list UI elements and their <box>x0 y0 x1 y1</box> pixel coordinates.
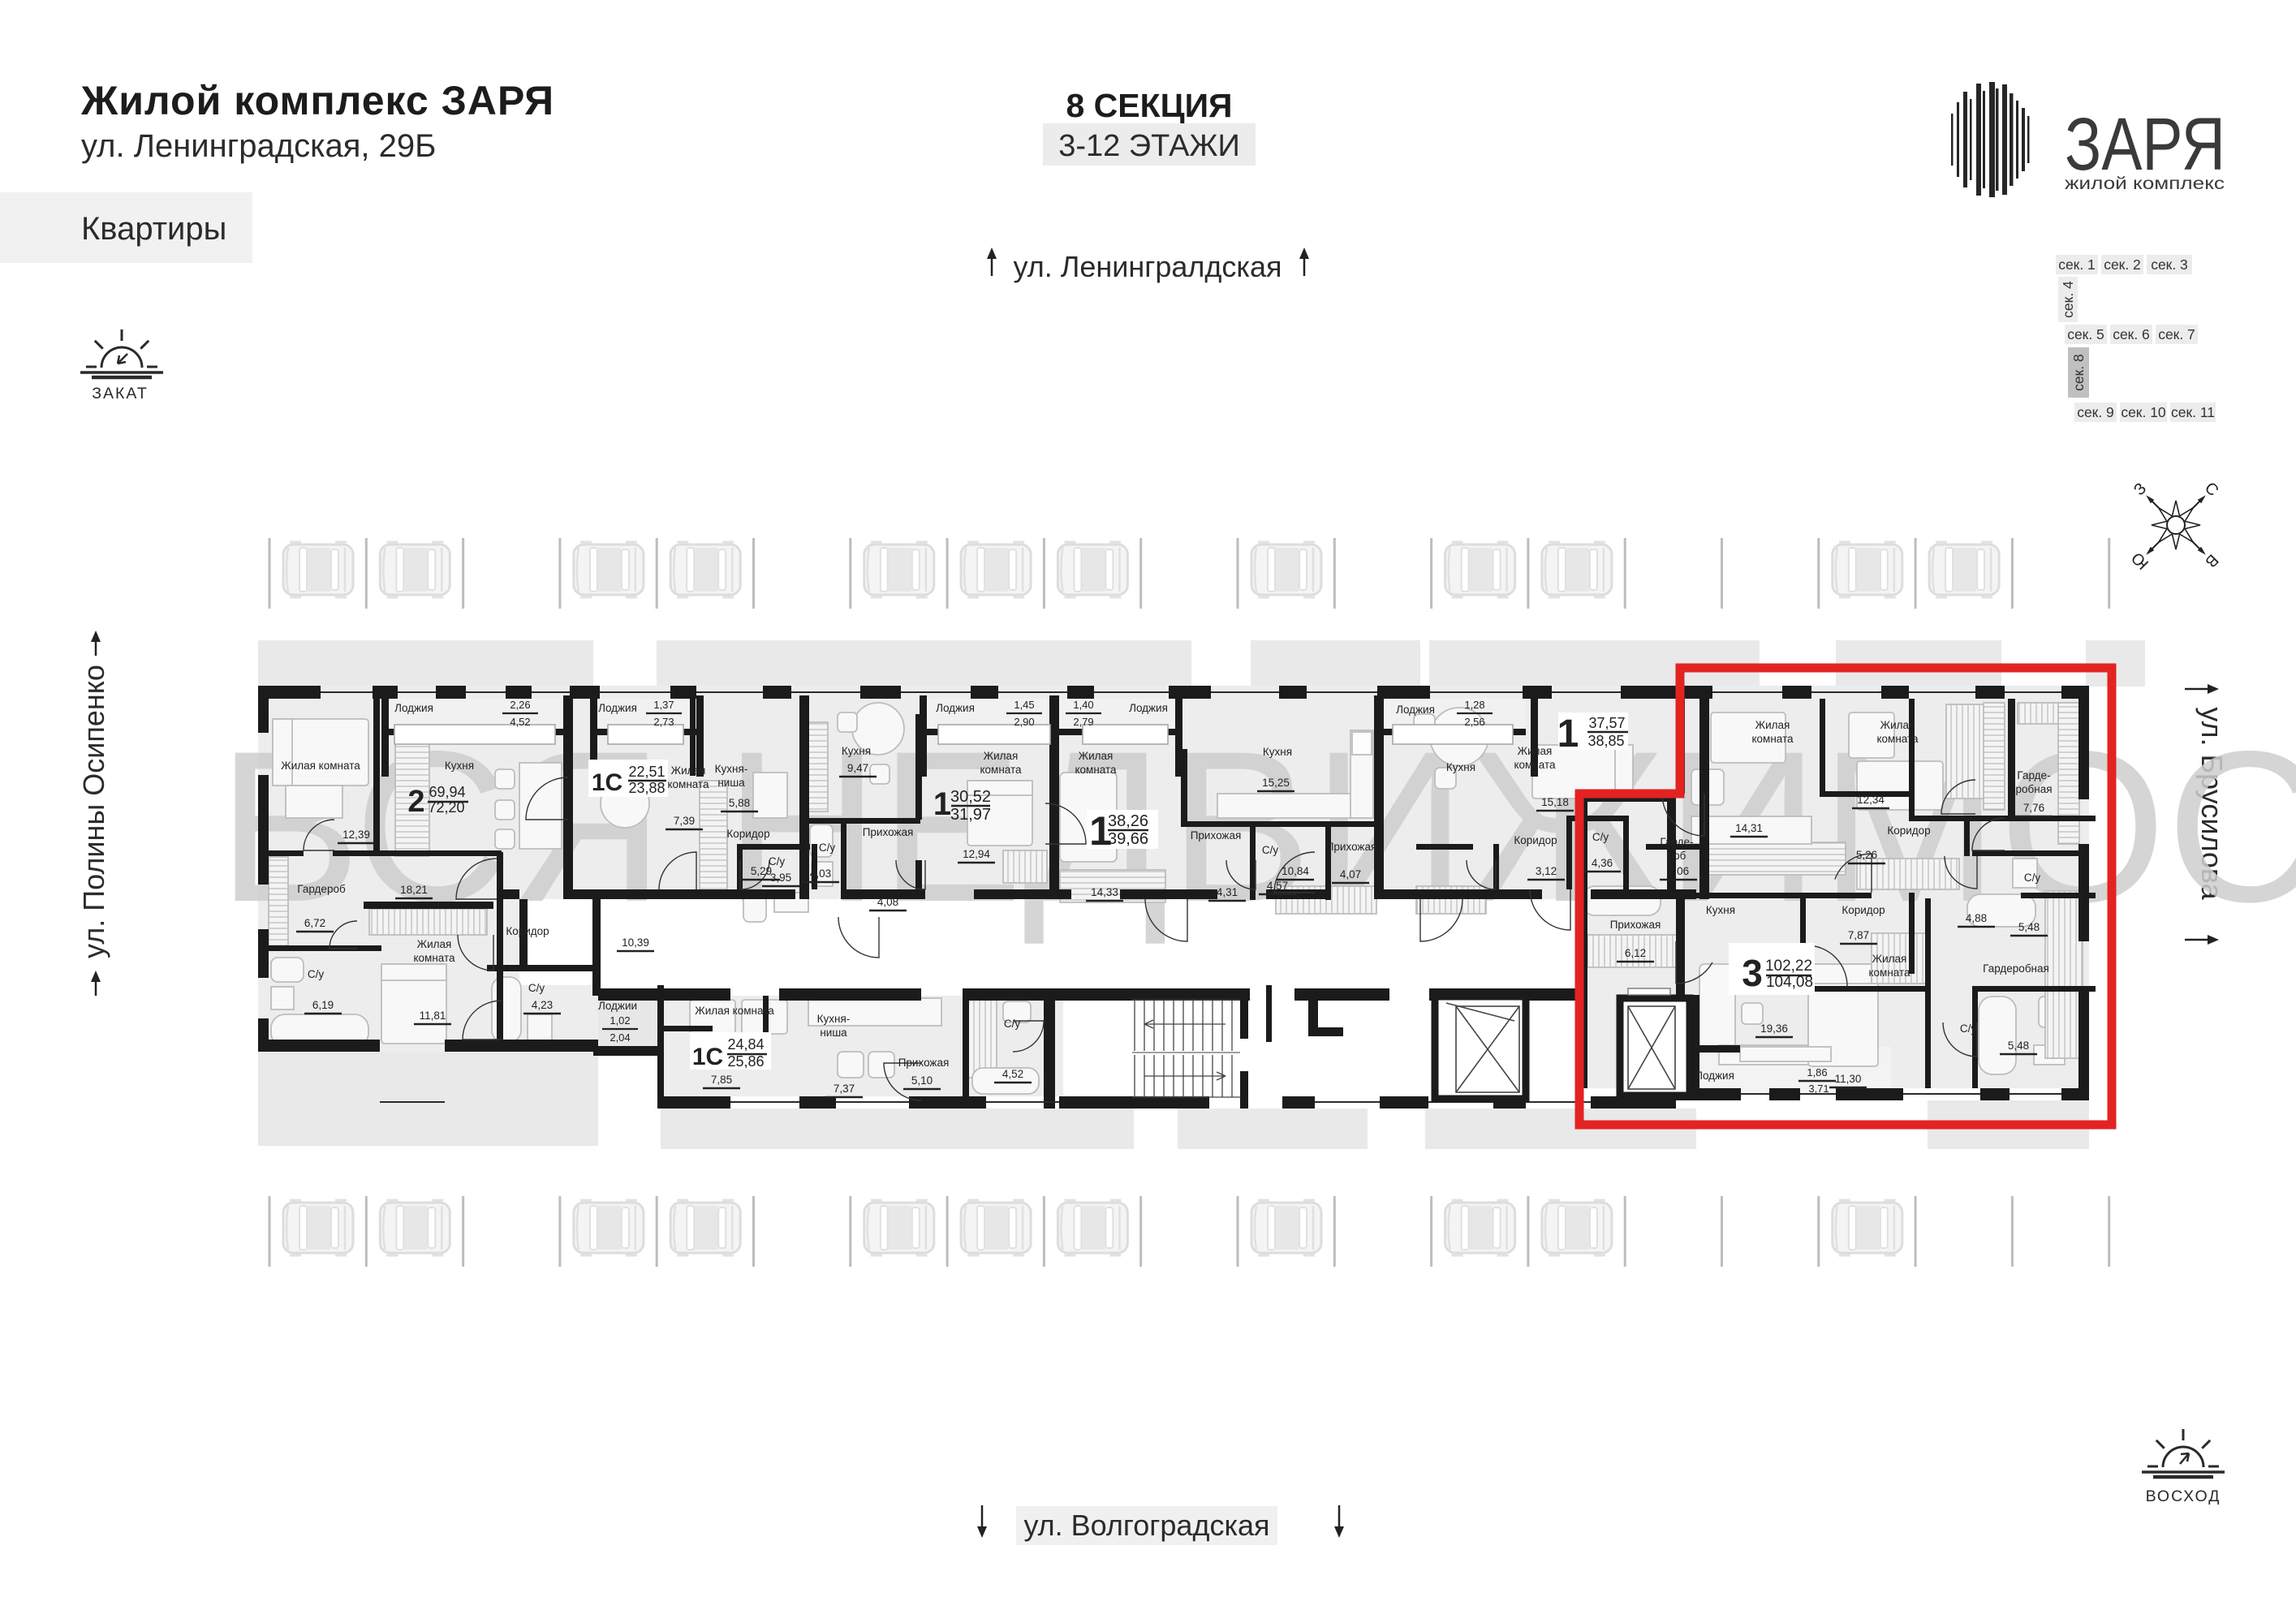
svg-text:Жилая комната: Жилая комната <box>695 1005 774 1017</box>
svg-text:1С: 1С <box>592 769 622 796</box>
svg-text:3: 3 <box>1742 952 1763 994</box>
svg-text:1,28: 1,28 <box>1464 699 1484 711</box>
svg-text:1: 1 <box>933 786 951 822</box>
svg-text:6,12: 6,12 <box>1625 947 1646 959</box>
svg-text:Гарде-: Гарде- <box>1660 836 1693 848</box>
svg-text:2: 2 <box>407 785 424 819</box>
svg-text:2,04: 2,04 <box>610 1031 630 1044</box>
svg-text:5,29: 5,29 <box>751 865 772 877</box>
svg-text:сек. 8: сек. 8 <box>2070 354 2087 391</box>
svg-text:9,47: 9,47 <box>847 762 868 774</box>
svg-text:1: 1 <box>1557 712 1579 756</box>
svg-text:Жилая: Жилая <box>1880 719 1915 731</box>
svg-text:Жилая: Жилая <box>984 750 1019 762</box>
svg-text:С/у: С/у <box>1592 831 1609 843</box>
svg-text:сек. 3: сек. 3 <box>2151 256 2188 273</box>
svg-text:11,81: 11,81 <box>420 1010 446 1022</box>
svg-text:Кухня: Кухня <box>1446 761 1475 773</box>
svg-text:Жилая: Жилая <box>1872 953 1907 965</box>
svg-text:Жилая: Жилая <box>1518 745 1553 757</box>
svg-text:жилой комплекс: жилой комплекс <box>2065 174 2225 193</box>
svg-text:1,02: 1,02 <box>610 1014 630 1027</box>
svg-text:7,85: 7,85 <box>711 1074 732 1086</box>
svg-text:72,20: 72,20 <box>428 799 464 816</box>
svg-text:ул. Ленингралдская: ул. Ленингралдская <box>1014 250 1282 283</box>
svg-text:сек. 2: сек. 2 <box>2104 256 2141 273</box>
svg-text:Квартиры: Квартиры <box>81 211 226 247</box>
svg-text:комната: комната <box>980 764 1022 776</box>
svg-text:2,56: 2,56 <box>1464 716 1484 728</box>
svg-text:Жилая: Жилая <box>1755 719 1790 731</box>
svg-text:37,57: 37,57 <box>1588 715 1625 731</box>
svg-text:сек. 6: сек. 6 <box>2113 326 2150 342</box>
svg-text:сек. 7: сек. 7 <box>2158 326 2195 342</box>
svg-text:С/у: С/у <box>819 842 836 854</box>
svg-text:Жилая: Жилая <box>1079 750 1114 762</box>
svg-text:сек. 10: сек. 10 <box>2121 404 2166 420</box>
svg-text:4,03: 4,03 <box>810 867 831 880</box>
svg-text:2,90: 2,90 <box>1014 716 1034 728</box>
svg-text:комната: комната <box>1876 733 1919 745</box>
svg-text:7,76: 7,76 <box>2023 802 2044 814</box>
svg-text:Кухня: Кухня <box>445 760 474 772</box>
svg-text:комната: комната <box>1075 764 1117 776</box>
svg-text:С/у: С/у <box>1960 1022 1977 1035</box>
svg-text:2,06: 2,06 <box>1668 865 1689 877</box>
svg-text:1,37: 1,37 <box>653 699 674 711</box>
svg-text:Коридор: Коридор <box>1842 904 1885 916</box>
svg-text:7,39: 7,39 <box>674 815 695 827</box>
svg-text:31,97: 31,97 <box>950 806 991 824</box>
svg-text:Жилая комната: Жилая комната <box>281 760 360 772</box>
svg-text:6,19: 6,19 <box>312 999 334 1011</box>
svg-text:3-12 ЭТАЖИ: 3-12 ЭТАЖИ <box>1058 129 1240 163</box>
svg-text:Прихожая: Прихожая <box>898 1057 950 1069</box>
svg-text:104,08: 104,08 <box>1766 974 1813 991</box>
svg-text:4,88: 4,88 <box>1966 912 1987 924</box>
svg-text:Кухня-: Кухня- <box>715 763 748 775</box>
svg-text:1,86: 1,86 <box>1807 1066 1827 1078</box>
svg-text:Коридор: Коридор <box>1514 834 1557 846</box>
svg-text:12,94: 12,94 <box>963 848 990 860</box>
svg-text:5,10: 5,10 <box>911 1074 933 1087</box>
svg-text:22,51: 22,51 <box>628 764 665 780</box>
svg-text:Коридор: Коридор <box>726 828 769 840</box>
svg-text:15,18: 15,18 <box>1541 796 1569 808</box>
svg-text:5,26: 5,26 <box>1856 849 1877 861</box>
svg-text:4,57: 4,57 <box>1267 880 1288 892</box>
svg-text:2,79: 2,79 <box>1073 716 1093 728</box>
svg-text:12,34: 12,34 <box>1857 794 1885 806</box>
svg-text:14,33: 14,33 <box>1091 886 1118 898</box>
svg-text:1,45: 1,45 <box>1014 699 1034 711</box>
svg-text:Жилой комплекс ЗАРЯ: Жилой комплекс ЗАРЯ <box>80 78 554 123</box>
svg-text:38,85: 38,85 <box>1587 733 1624 749</box>
svg-text:Лоджии: Лоджии <box>598 1000 637 1012</box>
svg-text:Кухня-: Кухня- <box>817 1013 851 1025</box>
svg-text:1,40: 1,40 <box>1073 699 1093 711</box>
svg-text:ниша: ниша <box>820 1027 847 1039</box>
svg-text:10,84: 10,84 <box>1282 865 1309 877</box>
svg-text:4,07: 4,07 <box>1340 868 1361 880</box>
svg-text:4,23: 4,23 <box>532 999 553 1011</box>
svg-text:6,72: 6,72 <box>304 917 325 929</box>
svg-text:сек. 4: сек. 4 <box>2060 281 2076 318</box>
svg-text:15,25: 15,25 <box>1262 777 1290 789</box>
svg-text:23,88: 23,88 <box>628 780 665 796</box>
svg-text:Коридор: Коридор <box>1887 824 1930 837</box>
svg-text:7,87: 7,87 <box>1848 929 1869 941</box>
svg-text:Лоджия: Лоджия <box>936 702 975 714</box>
svg-text:Прихожая: Прихожая <box>863 826 914 838</box>
svg-text:38,26: 38,26 <box>1108 812 1148 830</box>
svg-text:Гардеробная: Гардеробная <box>1983 962 2049 975</box>
svg-text:2,26: 2,26 <box>510 699 530 711</box>
svg-text:ул. Волгоградская: ул. Волгоградская <box>1023 1509 1269 1542</box>
svg-text:39,66: 39,66 <box>1108 830 1148 848</box>
svg-text:24,84: 24,84 <box>727 1036 764 1053</box>
svg-text:25,86: 25,86 <box>727 1053 764 1070</box>
svg-text:Лоджия: Лоджия <box>1129 702 1168 714</box>
svg-text:4,52: 4,52 <box>510 716 530 728</box>
svg-text:С/у: С/у <box>1004 1018 1021 1030</box>
svg-text:3,12: 3,12 <box>1536 865 1557 877</box>
svg-text:комната: комната <box>1514 759 1556 771</box>
svg-text:сек. 9: сек. 9 <box>2077 404 2114 420</box>
svg-text:8 СЕКЦИЯ: 8 СЕКЦИЯ <box>1066 87 1232 124</box>
svg-text:ЗАРЯ: ЗАРЯ <box>2065 103 2225 186</box>
svg-text:102,22: 102,22 <box>1765 958 1812 975</box>
svg-text:2,73: 2,73 <box>653 716 674 728</box>
svg-text:Лоджия: Лоджия <box>598 702 637 714</box>
svg-text:30,52: 30,52 <box>950 788 991 806</box>
svg-text:Прихожая: Прихожая <box>1326 841 1377 853</box>
svg-text:ниша: ниша <box>717 777 745 789</box>
svg-text:Гарде-: Гарде- <box>2017 769 2050 781</box>
svg-text:19,36: 19,36 <box>1760 1022 1788 1035</box>
svg-text:ул. Полины Осипенко: ул. Полины Осипенко <box>77 665 110 958</box>
svg-text:5,88: 5,88 <box>729 797 750 809</box>
svg-text:12,39: 12,39 <box>342 829 370 841</box>
svg-text:ВОСХОД: ВОСХОД <box>2146 1487 2221 1505</box>
svg-text:Кухня: Кухня <box>1706 904 1735 916</box>
svg-text:5,48: 5,48 <box>2008 1040 2029 1052</box>
svg-text:4,08: 4,08 <box>877 896 898 908</box>
svg-text:роб: роб <box>1668 850 1686 862</box>
svg-text:Лоджия: Лоджия <box>1695 1070 1734 1082</box>
svg-text:69,94: 69,94 <box>429 784 465 800</box>
svg-text:3,71: 3,71 <box>1808 1083 1829 1095</box>
svg-text:сек. 11: сек. 11 <box>2171 404 2215 420</box>
svg-text:18,21: 18,21 <box>400 884 428 896</box>
svg-text:Прихожая: Прихожая <box>1610 919 1661 931</box>
svg-text:Гардероб: Гардероб <box>297 883 346 895</box>
svg-text:5,48: 5,48 <box>2018 921 2040 933</box>
svg-text:14,31: 14,31 <box>1735 822 1763 834</box>
svg-text:7,37: 7,37 <box>834 1083 855 1095</box>
svg-text:С/у: С/у <box>308 968 325 980</box>
svg-text:3,95: 3,95 <box>770 872 791 884</box>
svg-text:Жилая: Жилая <box>417 938 452 950</box>
svg-text:С/у: С/у <box>528 982 545 994</box>
svg-text:1С: 1С <box>692 1044 723 1070</box>
svg-text:ЗАКАТ: ЗАКАТ <box>92 385 149 403</box>
svg-text:4,36: 4,36 <box>1592 857 1613 869</box>
svg-text:комната: комната <box>1751 733 1794 745</box>
svg-text:С/у: С/у <box>1262 844 1279 856</box>
svg-text:Жилая: Жилая <box>671 764 706 777</box>
svg-text:Лоджия: Лоджия <box>394 702 433 714</box>
svg-text:Коридор: Коридор <box>506 925 549 937</box>
svg-text:4,31: 4,31 <box>1217 886 1238 898</box>
svg-text:комната: комната <box>1868 966 1910 979</box>
svg-text:сек. 5: сек. 5 <box>2067 326 2104 342</box>
svg-text:11,30: 11,30 <box>1835 1073 1862 1085</box>
svg-text:комната: комната <box>667 778 709 790</box>
svg-text:комната: комната <box>413 952 455 964</box>
svg-text:робная: робная <box>2015 783 2052 795</box>
svg-text:Прихожая: Прихожая <box>1191 829 1242 842</box>
svg-text:Кухня: Кухня <box>1263 746 1292 758</box>
svg-text:сек. 1: сек. 1 <box>2058 256 2096 273</box>
svg-text:С/у: С/у <box>2024 872 2041 884</box>
svg-text:ул. Ленинградская, 29Б: ул. Ленинградская, 29Б <box>81 128 436 164</box>
svg-text:Лоджия: Лоджия <box>1396 704 1435 716</box>
svg-text:4,52: 4,52 <box>1002 1068 1023 1080</box>
svg-text:Кухня: Кухня <box>842 745 871 757</box>
svg-text:10,39: 10,39 <box>622 936 649 949</box>
